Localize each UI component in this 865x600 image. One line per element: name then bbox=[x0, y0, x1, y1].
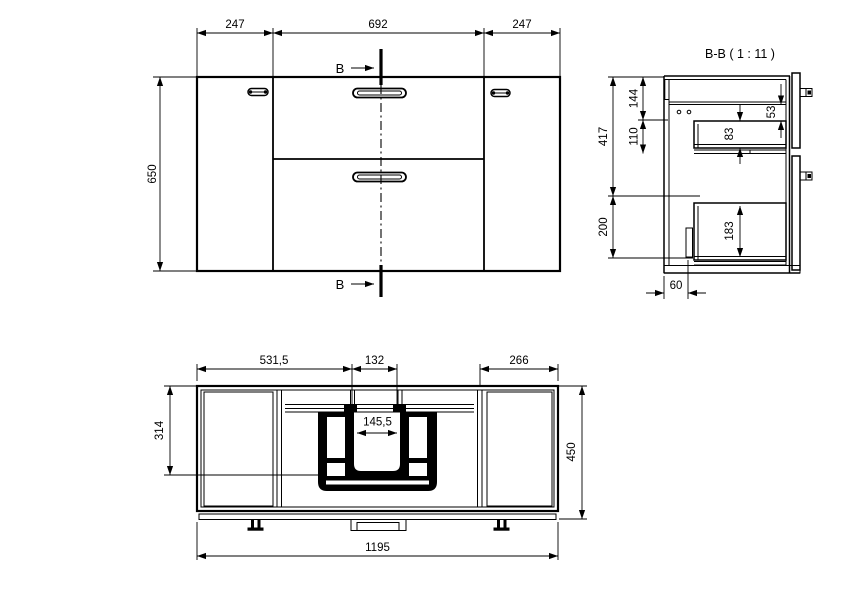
left-door-handle bbox=[248, 89, 268, 96]
dim-label-left-door-width: 247 bbox=[225, 19, 244, 31]
dim-label-total-height: 650 bbox=[147, 164, 159, 183]
dim-label-cutout-width: 132 bbox=[365, 355, 384, 367]
section-view-title: B-B ( 1 : 11 ) bbox=[705, 47, 775, 61]
dim-label-upper-zone: 417 bbox=[598, 127, 610, 146]
dim-label-total-width: 1195 bbox=[365, 542, 390, 554]
lower-drawer-front bbox=[792, 156, 812, 270]
dim-label-bracket-offset: 60 bbox=[670, 280, 683, 292]
dim-label-left-to-cutout: 531,5 bbox=[260, 355, 289, 367]
plan-carcass bbox=[197, 386, 558, 511]
shelf-pin-hole bbox=[677, 110, 681, 114]
dim-label-right-module: 266 bbox=[509, 355, 528, 367]
front-view: 247 692 247 650 bbox=[147, 19, 560, 297]
technical-drawing-canvas: 247 692 247 650 bbox=[0, 0, 865, 600]
front-height-dimension-lines bbox=[153, 77, 197, 271]
top-drawer-handle bbox=[353, 89, 406, 98]
shelf-pin-hole bbox=[687, 110, 691, 114]
dim-label-lower-zone: 200 bbox=[598, 217, 610, 236]
dim-label-lower-drawer-depth: 183 bbox=[724, 221, 736, 240]
right-door-handle bbox=[491, 90, 510, 97]
right-foot bbox=[494, 520, 510, 531]
cabinet-outline bbox=[197, 77, 560, 271]
dim-label-right-door-width: 247 bbox=[512, 19, 531, 31]
dim-label-top-panel: 144 bbox=[629, 88, 641, 108]
bottom-plinth bbox=[664, 266, 800, 274]
dim-label-top-clearance: 53 bbox=[766, 106, 778, 119]
bottom-drawer-handle bbox=[353, 173, 406, 182]
dim-label-total-depth: 450 bbox=[566, 442, 578, 461]
cabinet-drawing: 247 692 247 650 bbox=[0, 0, 865, 600]
upper-drawer-front bbox=[792, 73, 812, 148]
section-marker-top-label: B bbox=[336, 61, 345, 76]
side-bracket bbox=[686, 228, 693, 257]
section-carcass bbox=[664, 76, 800, 273]
section-view: B-B ( 1 : 11 ) bbox=[598, 47, 812, 299]
dim-label-upper-drawer-depth: 83 bbox=[724, 128, 736, 141]
dim-label-center-width: 692 bbox=[368, 19, 387, 31]
section-marker-bottom-label: B bbox=[336, 277, 345, 292]
dim-label-upper-opening: 110 bbox=[629, 127, 641, 145]
front-edge-strip bbox=[199, 514, 556, 520]
dim-label-front-to-cutout: 314 bbox=[154, 420, 166, 440]
left-foot bbox=[248, 520, 264, 531]
center-mount-bracket bbox=[351, 520, 406, 531]
plan-left-dimension-lines bbox=[164, 386, 318, 475]
dim-label-inner-notch: 145,5 bbox=[363, 417, 392, 429]
plan-view: 531,5 132 266 145,5 bbox=[154, 355, 587, 560]
front-top-dimension-lines bbox=[197, 28, 560, 77]
